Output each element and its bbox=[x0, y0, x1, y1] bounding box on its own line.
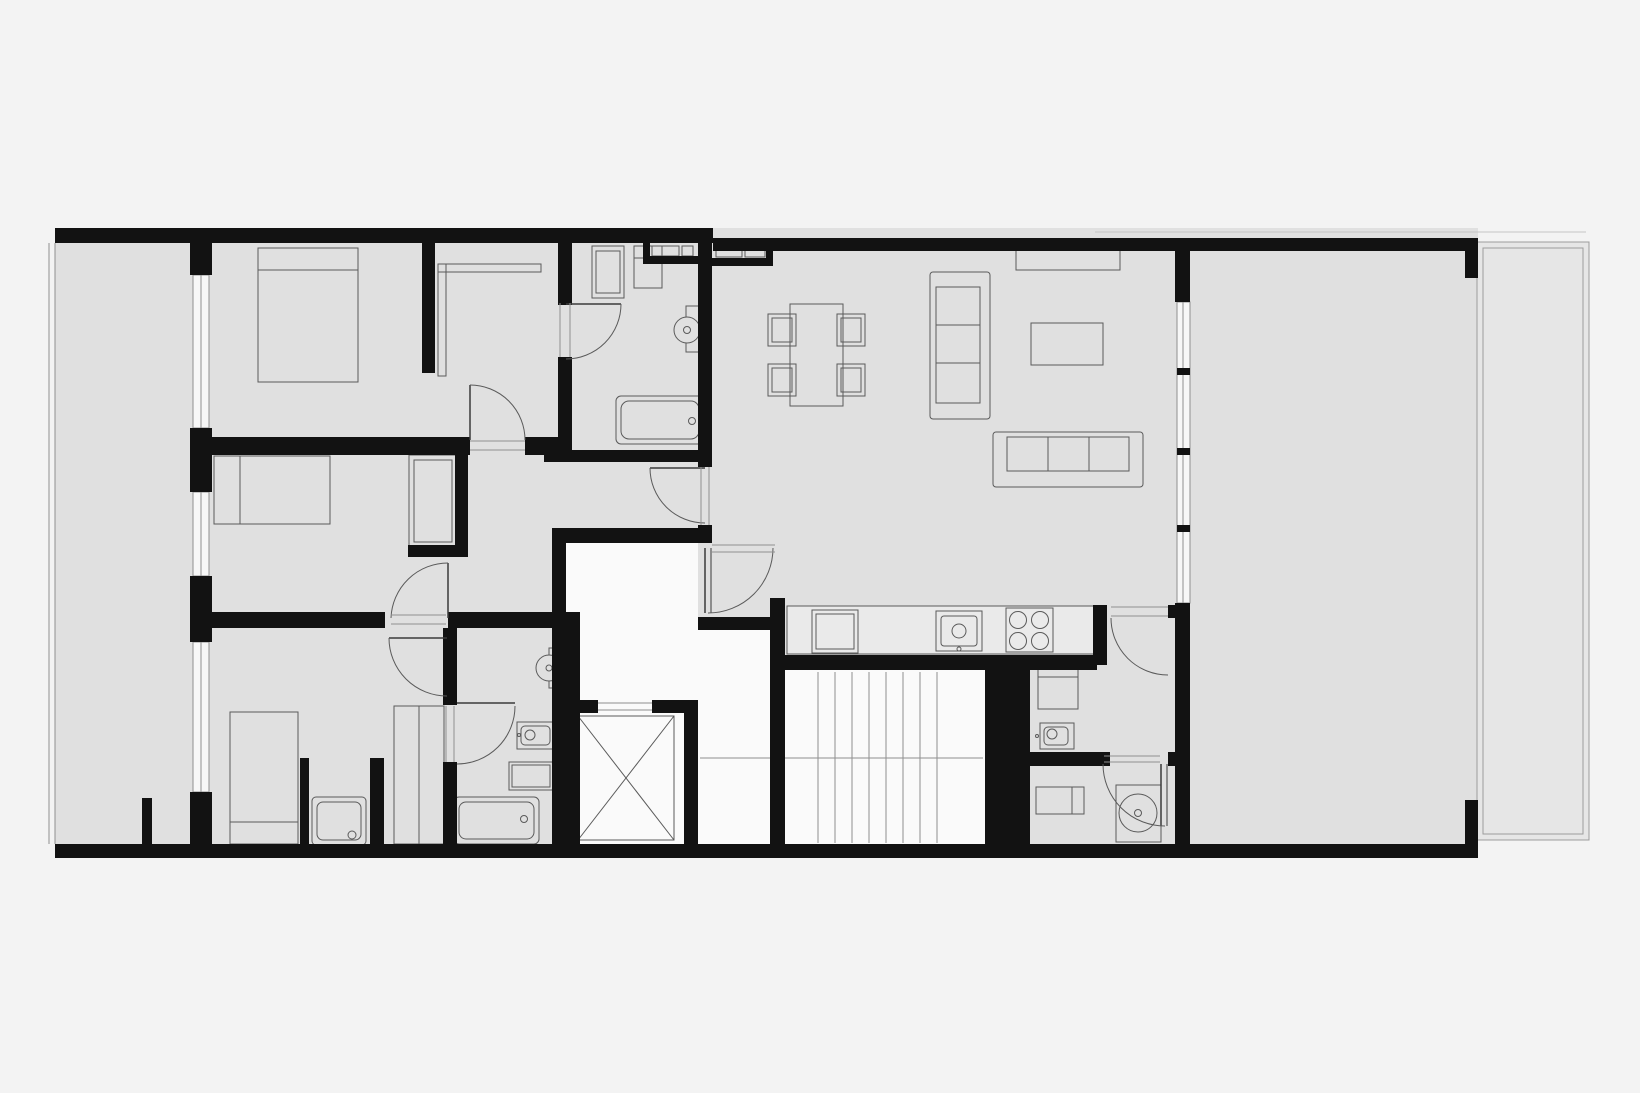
wall bbox=[770, 598, 785, 858]
wall bbox=[1465, 800, 1478, 844]
wall bbox=[212, 612, 385, 628]
wall bbox=[408, 545, 468, 557]
wall bbox=[785, 655, 1097, 670]
wall bbox=[443, 762, 457, 848]
stair-core-area bbox=[785, 670, 985, 858]
floor-plan-page bbox=[0, 0, 1640, 1093]
wall bbox=[713, 238, 1478, 251]
wall bbox=[544, 450, 698, 462]
wall bbox=[712, 258, 772, 266]
balcony-column bbox=[142, 798, 152, 844]
window-mullion bbox=[1177, 525, 1190, 532]
open-terrace bbox=[1477, 242, 1589, 840]
wall bbox=[190, 428, 212, 492]
wall bbox=[370, 758, 384, 846]
window-mullion bbox=[1177, 368, 1190, 375]
wall bbox=[1030, 752, 1110, 766]
wall bbox=[1168, 605, 1175, 618]
wall bbox=[698, 243, 712, 467]
wall bbox=[190, 576, 212, 642]
wall bbox=[558, 243, 572, 305]
wall bbox=[985, 670, 1002, 844]
floor-plan-svg bbox=[0, 0, 1640, 1093]
wall bbox=[1175, 603, 1190, 845]
wall bbox=[422, 243, 435, 373]
wall bbox=[552, 700, 566, 858]
wall bbox=[1175, 238, 1190, 302]
wall bbox=[766, 243, 773, 266]
wall bbox=[55, 228, 713, 243]
wall bbox=[448, 612, 580, 628]
wall bbox=[684, 700, 698, 858]
wall bbox=[55, 844, 1478, 858]
wall bbox=[190, 792, 212, 844]
wall bbox=[1093, 605, 1107, 665]
wall bbox=[1002, 657, 1030, 844]
wall bbox=[552, 528, 712, 543]
wall bbox=[565, 620, 580, 848]
wall bbox=[190, 243, 212, 275]
toilet-bowl bbox=[674, 317, 700, 343]
wall bbox=[558, 357, 572, 455]
wall bbox=[1465, 238, 1478, 278]
wall bbox=[212, 437, 470, 455]
wall bbox=[455, 450, 468, 557]
wall bbox=[643, 256, 710, 264]
wall bbox=[300, 758, 309, 846]
window-mullion bbox=[1177, 448, 1190, 455]
wall bbox=[443, 628, 457, 705]
areas-layer bbox=[55, 228, 1589, 858]
toilet-bowl bbox=[1119, 794, 1157, 832]
